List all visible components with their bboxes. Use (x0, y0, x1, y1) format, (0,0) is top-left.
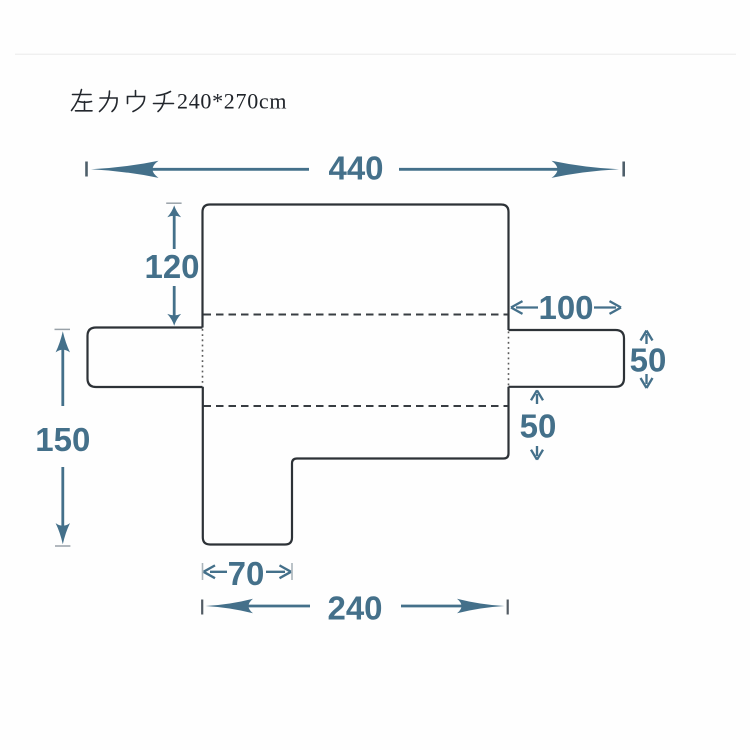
svg-text:440: 440 (328, 150, 383, 187)
svg-text:240: 240 (327, 590, 382, 627)
svg-text:70: 70 (228, 555, 265, 592)
svg-text:120: 120 (144, 248, 199, 285)
svg-text:100: 100 (538, 289, 593, 326)
svg-text:50: 50 (520, 408, 557, 445)
svg-text:240*270cm: 240*270cm (177, 89, 287, 114)
svg-text:150: 150 (35, 421, 90, 458)
svg-text:50: 50 (630, 342, 667, 379)
